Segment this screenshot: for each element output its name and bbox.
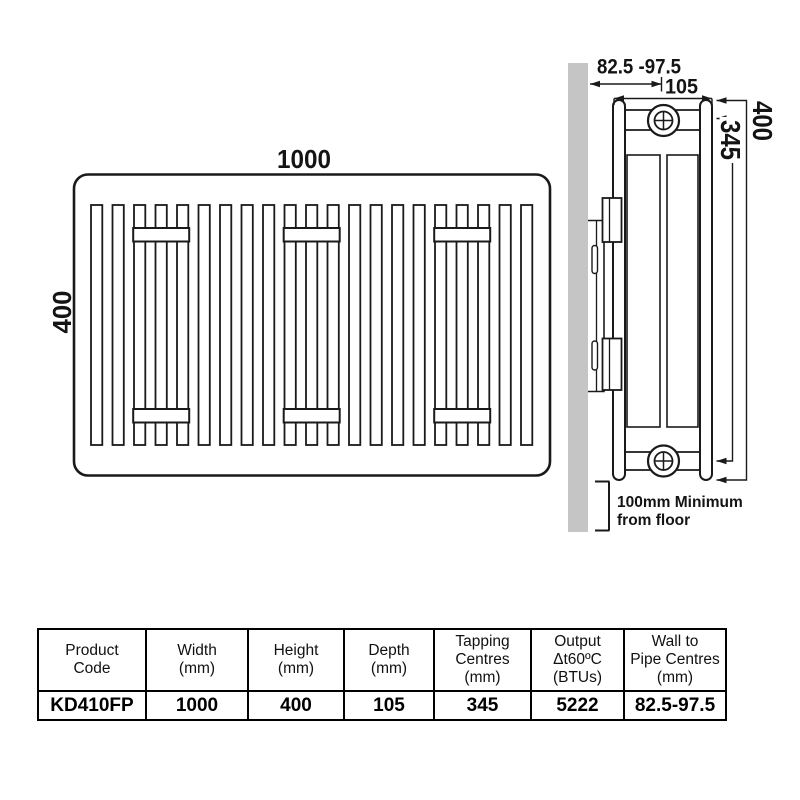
depth-label: 105 (665, 76, 698, 99)
value-output: 5222 (531, 691, 624, 720)
tapping-centres-label: 345 (715, 120, 746, 160)
radiator-diagram: 1000 400 (0, 0, 800, 600)
radiator-slat (392, 205, 403, 445)
side-height-label: 400 (747, 101, 778, 141)
value-product-code: KD410FP (38, 691, 146, 720)
wall-bracket-plate (588, 221, 604, 392)
value-tapping-centres: 345 (434, 691, 531, 720)
radiator-spec-page: 1000 400 (0, 0, 800, 800)
header-output: Output Δt60ºC (BTUs) (531, 629, 624, 691)
floor-note-line2: from floor (617, 512, 690, 529)
grille-bracket (133, 228, 189, 242)
dim-depth: 105 (614, 76, 712, 106)
value-depth: 105 (344, 691, 434, 720)
panel-front (700, 100, 712, 480)
panel-rear (613, 100, 625, 480)
grille-bracket (284, 409, 340, 423)
radiator-slat (91, 205, 102, 445)
grille-bracket (434, 228, 490, 242)
value-width: 1000 (146, 691, 248, 720)
wall (568, 63, 588, 532)
floor-clearance-note: 100mm Minimum from floor (617, 494, 743, 529)
header-wall-to-pipe-centres: Wall to Pipe Centres (mm) (624, 629, 726, 691)
radiator-slat (521, 205, 532, 445)
floor-clearance-bracket (595, 482, 610, 531)
dim-tapping-centres: 345 (715, 115, 746, 464)
radiator-slat (242, 205, 253, 445)
bracket-slot (592, 246, 598, 274)
top-tapping-valve (648, 105, 679, 136)
radiator-slat (199, 205, 210, 445)
front-height-label: 400 (47, 291, 77, 334)
radiator-slat (220, 205, 231, 445)
convector-fin-column (667, 155, 698, 427)
grille-bracket (284, 228, 340, 242)
radiator-slat (500, 205, 511, 445)
spec-table-header-row: Product Code Width (mm) Height (mm) Dept… (38, 629, 726, 691)
front-width-label: 1000 (277, 144, 331, 174)
header-height: Height (mm) (248, 629, 344, 691)
floor-note-line1: 100mm Minimum (617, 494, 743, 511)
header-depth: Depth (mm) (344, 629, 434, 691)
convector-fin-column (627, 155, 660, 427)
grille-bracket (434, 409, 490, 423)
radiator-slat (371, 205, 382, 445)
bottom-tapping-valve (648, 446, 679, 477)
value-height: 400 (248, 691, 344, 720)
radiator-slat (349, 205, 360, 445)
radiator-slat (113, 205, 124, 445)
front-view: 1000 400 (47, 144, 550, 476)
spec-table-value-row: KD410FP 1000 400 105 345 5222 82.5-97.5 (38, 691, 726, 720)
header-width: Width (mm) (146, 629, 248, 691)
bracket-slot (592, 341, 598, 370)
grille-bracket (133, 409, 189, 423)
header-tapping-centres: Tapping Centres (mm) (434, 629, 531, 691)
side-view: 82.5 -97.5 105 400 (568, 56, 778, 533)
spec-table: Product Code Width (mm) Height (mm) Dept… (37, 628, 727, 721)
header-product-code: Product Code (38, 629, 146, 691)
value-wall-to-pipe-centres: 82.5-97.5 (624, 691, 726, 720)
radiator-slat (414, 205, 425, 445)
radiator-slat (263, 205, 274, 445)
